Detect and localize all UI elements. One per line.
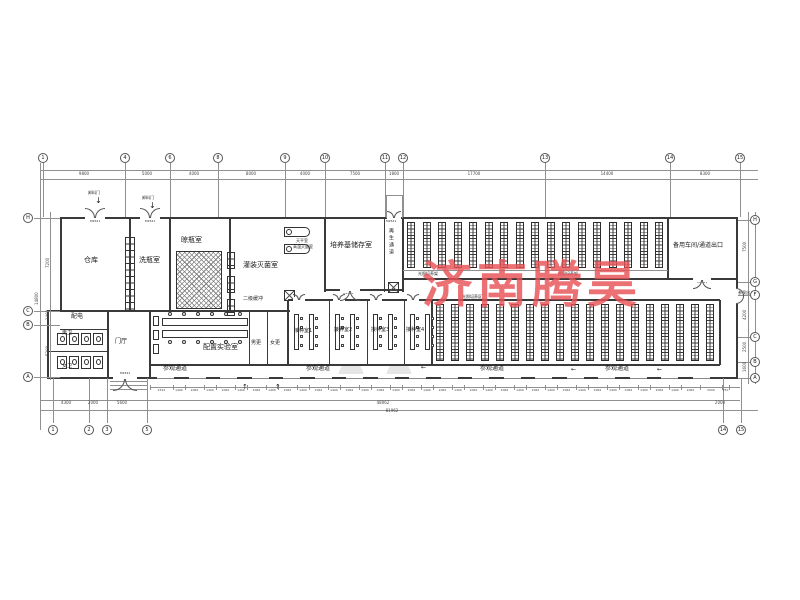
dim-window: 2062: [344, 389, 356, 392]
room-label-peidian: 配电: [71, 314, 83, 320]
dim-tick: [495, 385, 496, 390]
lab-bench: [162, 318, 248, 326]
dim-bottom: 2000: [85, 401, 101, 405]
construction-line: [50, 212, 51, 380]
culture-rack: [691, 304, 699, 361]
dim-tick: [729, 385, 730, 390]
grid-line: [741, 378, 742, 423]
inoculation-chair: [315, 335, 318, 338]
toilet-fixture: [60, 336, 65, 342]
floor-plan-drawing: 济南腾昊 1468910111213141512351415HCBAHGFCBA…: [0, 0, 800, 600]
dim-window: 1400: [669, 389, 681, 392]
inoculation-chair: [341, 335, 344, 338]
corridor-label-4: 参观通道: [605, 366, 629, 372]
dim-tick: [340, 385, 341, 390]
grid-bubble-A: A: [23, 372, 33, 382]
door-leaf: [702, 280, 711, 289]
window: [220, 377, 237, 380]
grid-line: [43, 163, 44, 217]
dim-tick: [681, 385, 682, 390]
grid-line: [738, 282, 750, 283]
inoculation-chair: [416, 344, 419, 347]
inoculation-bench: [425, 314, 430, 350]
window: [630, 377, 647, 380]
hepa-unit: [338, 366, 364, 374]
lab-stool: [238, 312, 242, 316]
inoculation-chair: [300, 317, 303, 320]
grid-line: [738, 378, 750, 379]
corridor-label-3: 参观通道: [480, 366, 504, 372]
toilet-fixture: [72, 336, 77, 342]
dim-bottom: 4300: [58, 401, 74, 405]
room-label-nanwei: 男卫: [62, 331, 72, 336]
drying-rack-area: [176, 251, 222, 309]
culture-rack: [661, 304, 669, 361]
inoculation-chair: [394, 326, 397, 329]
window: [378, 377, 395, 380]
grid-line: [738, 337, 750, 338]
dim-top: 9800: [76, 172, 92, 176]
dim-window: 2062: [375, 389, 387, 392]
window: [504, 377, 521, 380]
grid-line: [53, 378, 54, 423]
grid-line: [670, 163, 671, 217]
lab-stool: [168, 312, 172, 316]
grid-line: [545, 163, 546, 217]
grid-bubble-5: 5: [142, 425, 152, 435]
inoculation-chair: [315, 326, 318, 329]
dim-top: 1800: [386, 172, 402, 176]
grid-line: [218, 163, 219, 217]
inoculation-chair: [394, 344, 397, 347]
inoculation-chair: [300, 335, 303, 338]
arrow-left-2: ←: [571, 367, 576, 373]
grid-bubble-2: 2: [84, 425, 94, 435]
room-label-tianping: 天平室: [296, 239, 308, 243]
dim-tick: [526, 385, 527, 390]
arrow-up-1: ↑: [242, 384, 248, 391]
grid-bubble-10: 10: [320, 153, 330, 163]
wall: [404, 300, 405, 365]
grid-line: [325, 163, 326, 217]
room-label-erjihuanchong: 二级缓冲: [243, 297, 263, 302]
dim-top: 17700: [466, 172, 482, 176]
grid-line: [285, 163, 286, 217]
room-label-guanzhuang: 灌装灭菌室: [243, 262, 278, 269]
inoculation-chair: [394, 335, 397, 338]
dim-window: 2512: [156, 389, 168, 392]
grid-bubble-14: 14: [665, 153, 675, 163]
culture-rack: [646, 304, 654, 361]
dim-tick: [216, 385, 217, 390]
autoclave-door: [286, 229, 292, 235]
dim-top: 8000: [243, 172, 259, 176]
window: [409, 377, 426, 380]
grid-bubble-14: 14: [718, 425, 728, 435]
dim-right: 7500: [743, 242, 747, 252]
wall: [384, 218, 385, 292]
grid-line: [34, 325, 60, 326]
bottle-conveyor: [125, 237, 135, 311]
inoculation-chair: [356, 335, 359, 338]
arrow-left-1: ←: [421, 365, 426, 371]
dim-top: 4000: [297, 172, 313, 176]
dim-window: 1400: [297, 389, 309, 392]
dim-top: 7500: [347, 172, 363, 176]
dim-right: 2500: [743, 342, 747, 352]
dim-tick: [464, 385, 465, 390]
toilet-fixture: [72, 359, 77, 365]
dim-tick: [588, 385, 589, 390]
grid-bubble-G: G: [750, 277, 760, 287]
grid-line: [740, 163, 741, 217]
wall: [47, 351, 108, 352]
dim-window: 1400: [390, 389, 402, 392]
dim-top: 8300: [697, 172, 713, 176]
hepa-unit: [386, 366, 412, 374]
grid-bubble-H: H: [23, 213, 33, 223]
window: [472, 377, 489, 380]
lab-stool: [168, 340, 172, 344]
window: [283, 377, 300, 380]
toilet-fixture: [84, 336, 89, 342]
room-label-xipingshi: 洗瓶室: [139, 257, 160, 264]
door-leaf: [736, 296, 744, 304]
dim-bottom: 48062: [375, 401, 391, 405]
grid-bubble-1: 1: [48, 425, 58, 435]
window: [567, 377, 584, 380]
dim-window: 2062: [313, 389, 325, 392]
grid-bubble-C: C: [23, 306, 33, 316]
wall: [60, 310, 290, 312]
toilet-fixture: [84, 359, 89, 365]
air-shower: [388, 282, 399, 293]
room-label-peizhi: 配置实验室: [203, 344, 238, 351]
door-leaf: [95, 208, 105, 218]
dim-window: 1400: [421, 389, 433, 392]
window: [441, 377, 458, 380]
dim-window: 1400: [328, 389, 340, 392]
dim-window: 2062: [189, 389, 201, 392]
room-label-jiezhong-2: 接种室2: [334, 328, 352, 333]
dim-window: 2062: [685, 389, 697, 392]
room-label-nangeng: 男更: [251, 341, 261, 346]
wall: [249, 311, 250, 365]
room-label-menting: 门厅: [115, 339, 127, 345]
room-label-nvgeng: 女更: [270, 341, 280, 346]
grid-line: [738, 220, 750, 221]
dim-bottom: 5600: [114, 401, 130, 405]
inoculation-chair: [341, 344, 344, 347]
grid-bubble-H: H: [750, 215, 760, 225]
toilet-fixture: [96, 359, 101, 365]
dim-window: 1400: [638, 389, 650, 392]
grid-line: [34, 377, 60, 378]
door-tag-3: M1521: [386, 220, 396, 223]
door-leaf: [413, 294, 419, 300]
grid-line: [125, 163, 126, 217]
dim-window: 1400: [545, 389, 557, 392]
lab-bench: [162, 330, 248, 338]
lab-stool: [224, 312, 228, 316]
inoculation-chair: [394, 317, 397, 320]
grid-line: [34, 218, 60, 219]
dim-tick: [700, 385, 701, 390]
inoculation-chair: [356, 317, 359, 320]
arrow-down-1: ↓: [95, 197, 102, 205]
dim-window: 2000: [705, 389, 717, 392]
grid-line: [147, 378, 148, 423]
door-leaf: [299, 294, 305, 300]
window: [535, 377, 552, 380]
culture-rack: [706, 304, 714, 361]
wall: [60, 217, 62, 312]
inoculation-chair: [431, 326, 434, 329]
door-label-xieliao-1: 卸料门: [88, 191, 100, 195]
bottle-rack: [227, 276, 235, 293]
door-leaf: [394, 211, 401, 218]
dim-total: 81962: [382, 409, 402, 413]
grid-bubble-F: F: [750, 290, 760, 300]
dim-tick: [650, 385, 651, 390]
inoculation-chair: [300, 344, 303, 347]
arrow-left-3: ←: [657, 367, 662, 373]
door-leaf: [85, 208, 95, 218]
inoculation-chair: [379, 335, 382, 338]
dim-window: 1400: [607, 389, 619, 392]
wall: [367, 300, 368, 365]
dim-left: 1400: [46, 310, 50, 320]
culture-rack: [407, 222, 415, 268]
grid-bubble-9: 9: [280, 153, 290, 163]
room-label-beiyong: 备用车间/通道出口: [673, 243, 723, 249]
grid-bubble-A: A: [750, 373, 760, 383]
dim-left: 7200: [46, 258, 50, 268]
wall: [107, 310, 109, 378]
dim-window: 2062: [220, 389, 232, 392]
grid-bubble-C: C: [750, 332, 760, 342]
dim-tick: [619, 385, 620, 390]
lab-stool: [238, 340, 242, 344]
wall: [402, 218, 404, 292]
dim-bottom: 2000: [712, 401, 728, 405]
door-leaf: [376, 294, 382, 300]
grid-bubble-1: 1: [38, 153, 48, 163]
room-label-cangku: 仓库: [84, 257, 98, 264]
grid-bubble-6: 6: [165, 153, 175, 163]
wall: [324, 218, 326, 292]
dim-window: 1400: [576, 389, 588, 392]
dim-window: 2062: [530, 389, 542, 392]
window: [661, 377, 678, 380]
dim-window: 2062: [499, 389, 511, 392]
inoculation-chair: [431, 317, 434, 320]
grid-line: [170, 163, 171, 217]
door-tag-6: M1521: [120, 372, 130, 375]
dim-right: 4200: [743, 310, 747, 320]
wall: [719, 300, 721, 365]
inoculation-chair: [379, 317, 382, 320]
dim-window: 1400: [514, 389, 526, 392]
dim-tick: [185, 385, 186, 390]
room-label-peiyangji: 培养基储存室: [330, 242, 372, 249]
grid-bubble-B: B: [23, 320, 33, 330]
lab-stool: [196, 312, 200, 316]
door-tag-1: M1521: [90, 220, 100, 223]
room-label-zaisheng: 再生通道: [388, 228, 393, 256]
inoculation-chair: [431, 344, 434, 347]
grid-bubble-B: B: [750, 357, 760, 367]
construction-line: [748, 212, 749, 384]
inoculation-chair: [379, 344, 382, 347]
culture-rack: [676, 304, 684, 361]
dim-window: 1400: [204, 389, 216, 392]
wall: [329, 300, 330, 365]
watermark: 济南腾昊: [422, 245, 642, 317]
lab-stool: [210, 312, 214, 316]
window: [693, 377, 710, 380]
dim-window: 2062: [437, 389, 449, 392]
lab-stool: [196, 340, 200, 344]
wall: [267, 311, 268, 365]
dim-tick: [433, 385, 434, 390]
window: [315, 377, 332, 380]
dim-tick: [402, 385, 403, 390]
inoculation-chair: [341, 317, 344, 320]
wall: [150, 364, 720, 366]
corridor-label-2: 参观通道: [306, 366, 330, 372]
inoculation-chair: [315, 317, 318, 320]
autoclave-door: [286, 246, 292, 252]
grid-bubble-15: 15: [735, 153, 745, 163]
dim-window: 1400: [173, 389, 185, 392]
dim-window: 1400: [452, 389, 464, 392]
dim-window: 2062: [592, 389, 604, 392]
wall: [169, 218, 171, 311]
culture-rack: [655, 222, 663, 268]
dim-tick: [150, 385, 151, 390]
room-label-liangpingshi: 晾瓶室: [181, 237, 202, 244]
dim-left: 14800: [35, 292, 39, 305]
bottle-rack: [227, 252, 235, 269]
grid-bubble-13: 13: [540, 153, 550, 163]
inoculation-chair: [315, 344, 318, 347]
dim-window: 1400: [483, 389, 495, 392]
room-label-jiezhong-3: 接种室3: [371, 328, 389, 333]
dim-window: 2062: [623, 389, 635, 392]
toilet-fixture: [96, 336, 101, 342]
grid-bubble-3: 3: [102, 425, 112, 435]
lab-equipment: [153, 316, 159, 326]
dim-tick: [309, 385, 310, 390]
dim-top: 4000: [186, 172, 202, 176]
room-label-nvwei: 女卫: [62, 364, 72, 369]
lab-stool: [182, 312, 186, 316]
dim-tick: [371, 385, 372, 390]
inoculation-chair: [356, 344, 359, 347]
corridor-label-1: 参观通道: [163, 366, 187, 372]
door-leaf: [339, 294, 345, 300]
dim-window: 2062: [468, 389, 480, 392]
door-tag-2: M1521: [145, 220, 155, 223]
inoculation-chair: [431, 335, 434, 338]
construction-line: [40, 163, 41, 430]
room-label-jiezhong-1: 接种室1: [294, 329, 312, 334]
wall: [47, 310, 49, 379]
dim-window: 2062: [654, 389, 666, 392]
grid-line: [107, 378, 108, 423]
inoculation-chair: [356, 326, 359, 329]
dim-right: 1600: [743, 362, 747, 372]
grid-line: [403, 163, 404, 217]
door-leaf: [387, 211, 394, 218]
wall: [149, 310, 151, 378]
inoculation-chair: [416, 317, 419, 320]
lab-stool: [182, 340, 186, 344]
dim-tick: [557, 385, 558, 390]
window: [189, 377, 206, 380]
dim-window: 2062: [561, 389, 573, 392]
dim-window: 2062: [282, 389, 294, 392]
inoculation-chair: [416, 335, 419, 338]
dim-left: 5200: [46, 346, 50, 356]
construction-line: [386, 195, 403, 196]
dim-top: 5000: [139, 172, 155, 176]
arrow-up-2: ↑: [275, 384, 281, 391]
grid-bubble-4: 4: [120, 153, 130, 163]
grid-bubble-11: 11: [380, 153, 390, 163]
construction-line: [40, 179, 758, 180]
bottle-rack: [227, 299, 235, 316]
dim-window: 2062: [406, 389, 418, 392]
window: [252, 377, 269, 380]
dim-window: 2062: [251, 389, 263, 392]
room-label-gaowen: 高温灭菌室: [293, 245, 313, 249]
door-label-xieliao-2: 卸料门: [142, 196, 154, 200]
door-leaf: [693, 280, 702, 289]
window: [598, 377, 615, 380]
dim-top: 14400: [599, 172, 615, 176]
lab-equipment: [153, 344, 159, 354]
dim-window: 1400: [359, 389, 371, 392]
grid-bubble-15: 15: [736, 425, 746, 435]
grid-bubble-12: 12: [398, 153, 408, 163]
room-label-jiezhong-4: 接种室4: [406, 328, 424, 333]
window: [157, 377, 174, 380]
window: [346, 377, 363, 380]
grid-bubble-8: 8: [213, 153, 223, 163]
lab-equipment: [153, 330, 159, 340]
